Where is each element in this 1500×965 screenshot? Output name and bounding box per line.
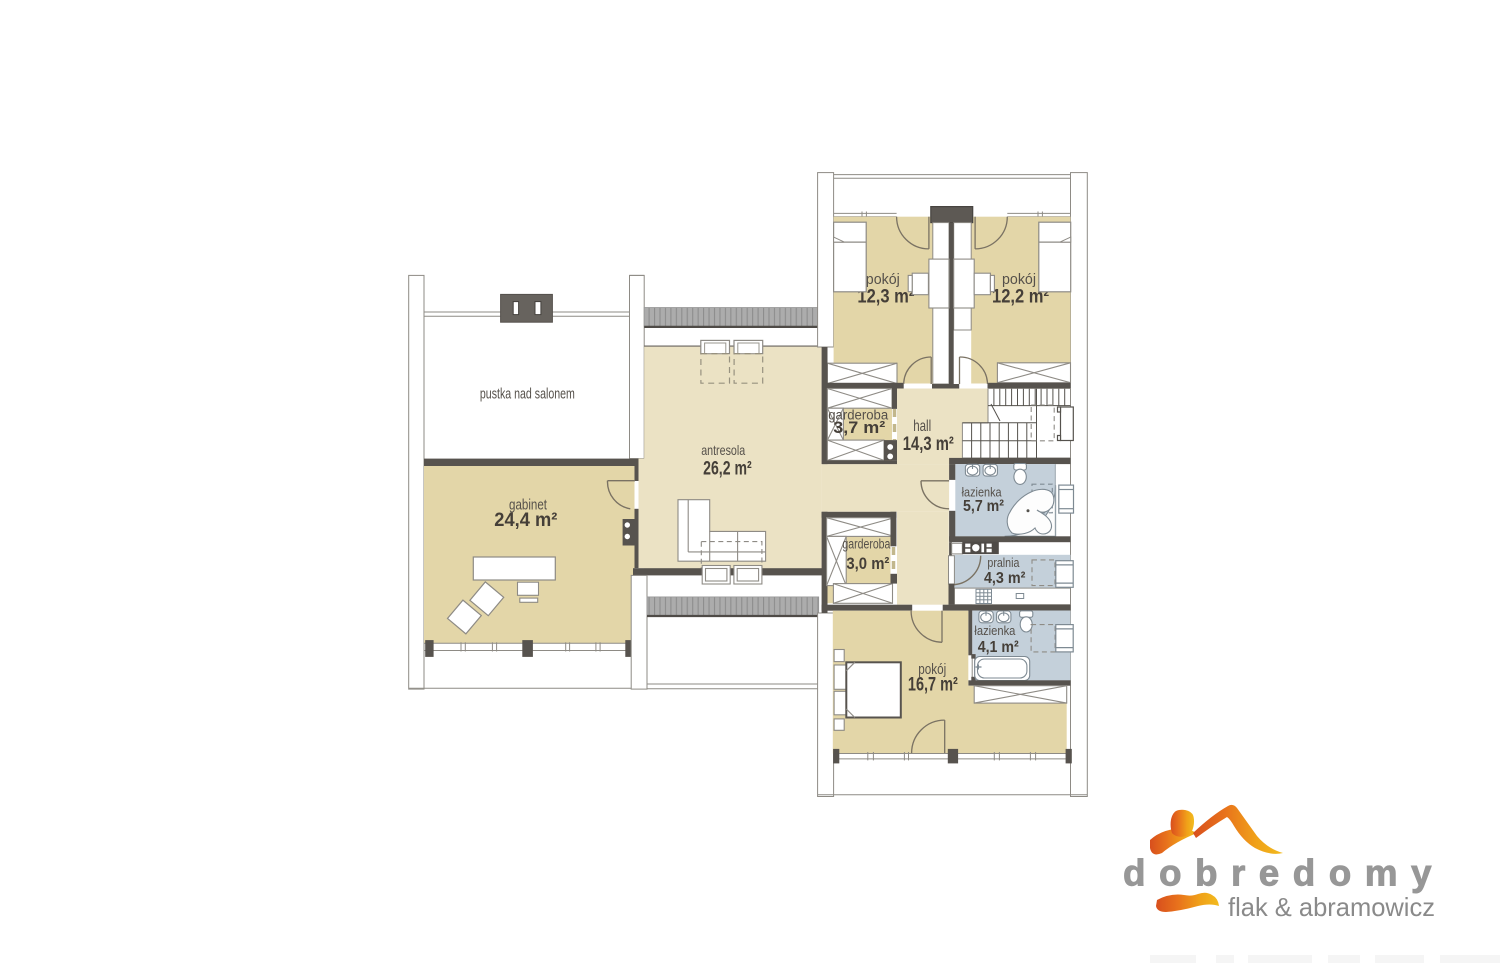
- svg-text:16,7 m²: 16,7 m²: [908, 675, 958, 696]
- svg-text:pustka nad salonem: pustka nad salonem: [480, 386, 575, 403]
- svg-text:26,2 m²: 26,2 m²: [703, 459, 752, 480]
- svg-text:4,3 m²: 4,3 m²: [984, 570, 1026, 587]
- svg-text:24,4 m²: 24,4 m²: [494, 510, 557, 531]
- svg-text:garderoba: garderoba: [842, 537, 890, 552]
- svg-text:antresola: antresola: [701, 442, 745, 458]
- svg-text:flak & abramowicz: flak & abramowicz: [1228, 892, 1435, 922]
- svg-text:3,7 m²: 3,7 m²: [833, 418, 885, 437]
- svg-text:3,0 m²: 3,0 m²: [846, 554, 889, 573]
- svg-text:pokój: pokój: [866, 271, 900, 288]
- svg-text:łazienka: łazienka: [974, 623, 1016, 638]
- svg-text:dobredomy: dobredomy: [1123, 853, 1445, 894]
- svg-text:pokój: pokój: [1002, 271, 1036, 288]
- svg-text:4,1 m²: 4,1 m²: [978, 639, 1019, 656]
- svg-text:pralnia: pralnia: [987, 555, 1020, 570]
- svg-text:5,7 m²: 5,7 m²: [963, 498, 1004, 515]
- svg-text:14,3 m²: 14,3 m²: [903, 434, 954, 455]
- svg-text:hall: hall: [913, 418, 931, 435]
